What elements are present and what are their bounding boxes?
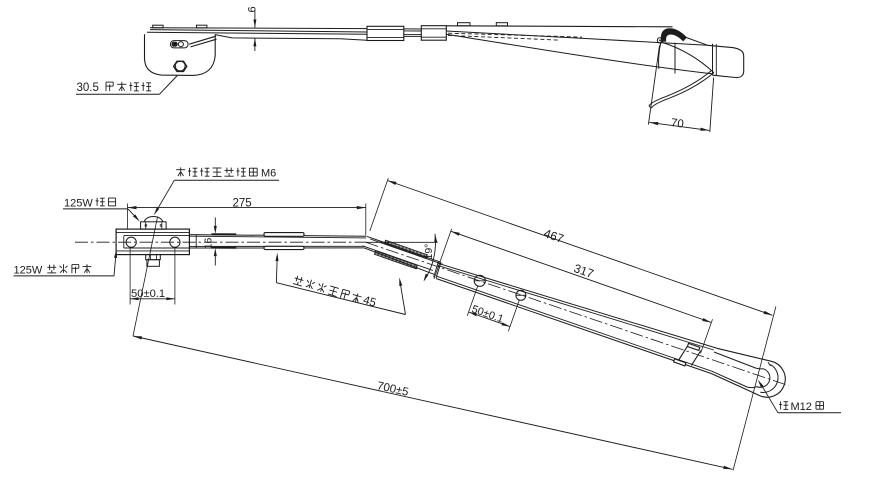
svg-text:125W: 125W (14, 264, 43, 276)
svg-text:125W: 125W (64, 197, 93, 209)
svg-text:70: 70 (670, 117, 684, 131)
svg-text:50±0.1: 50±0.1 (131, 288, 165, 300)
svg-text:275: 275 (233, 197, 252, 209)
svg-text:M6: M6 (261, 168, 276, 180)
svg-text:19°: 19° (423, 244, 435, 260)
svg-text:6: 6 (247, 6, 259, 12)
svg-text:16: 16 (203, 237, 215, 249)
svg-text:M12: M12 (791, 401, 812, 413)
svg-text:30.5: 30.5 (77, 82, 99, 94)
